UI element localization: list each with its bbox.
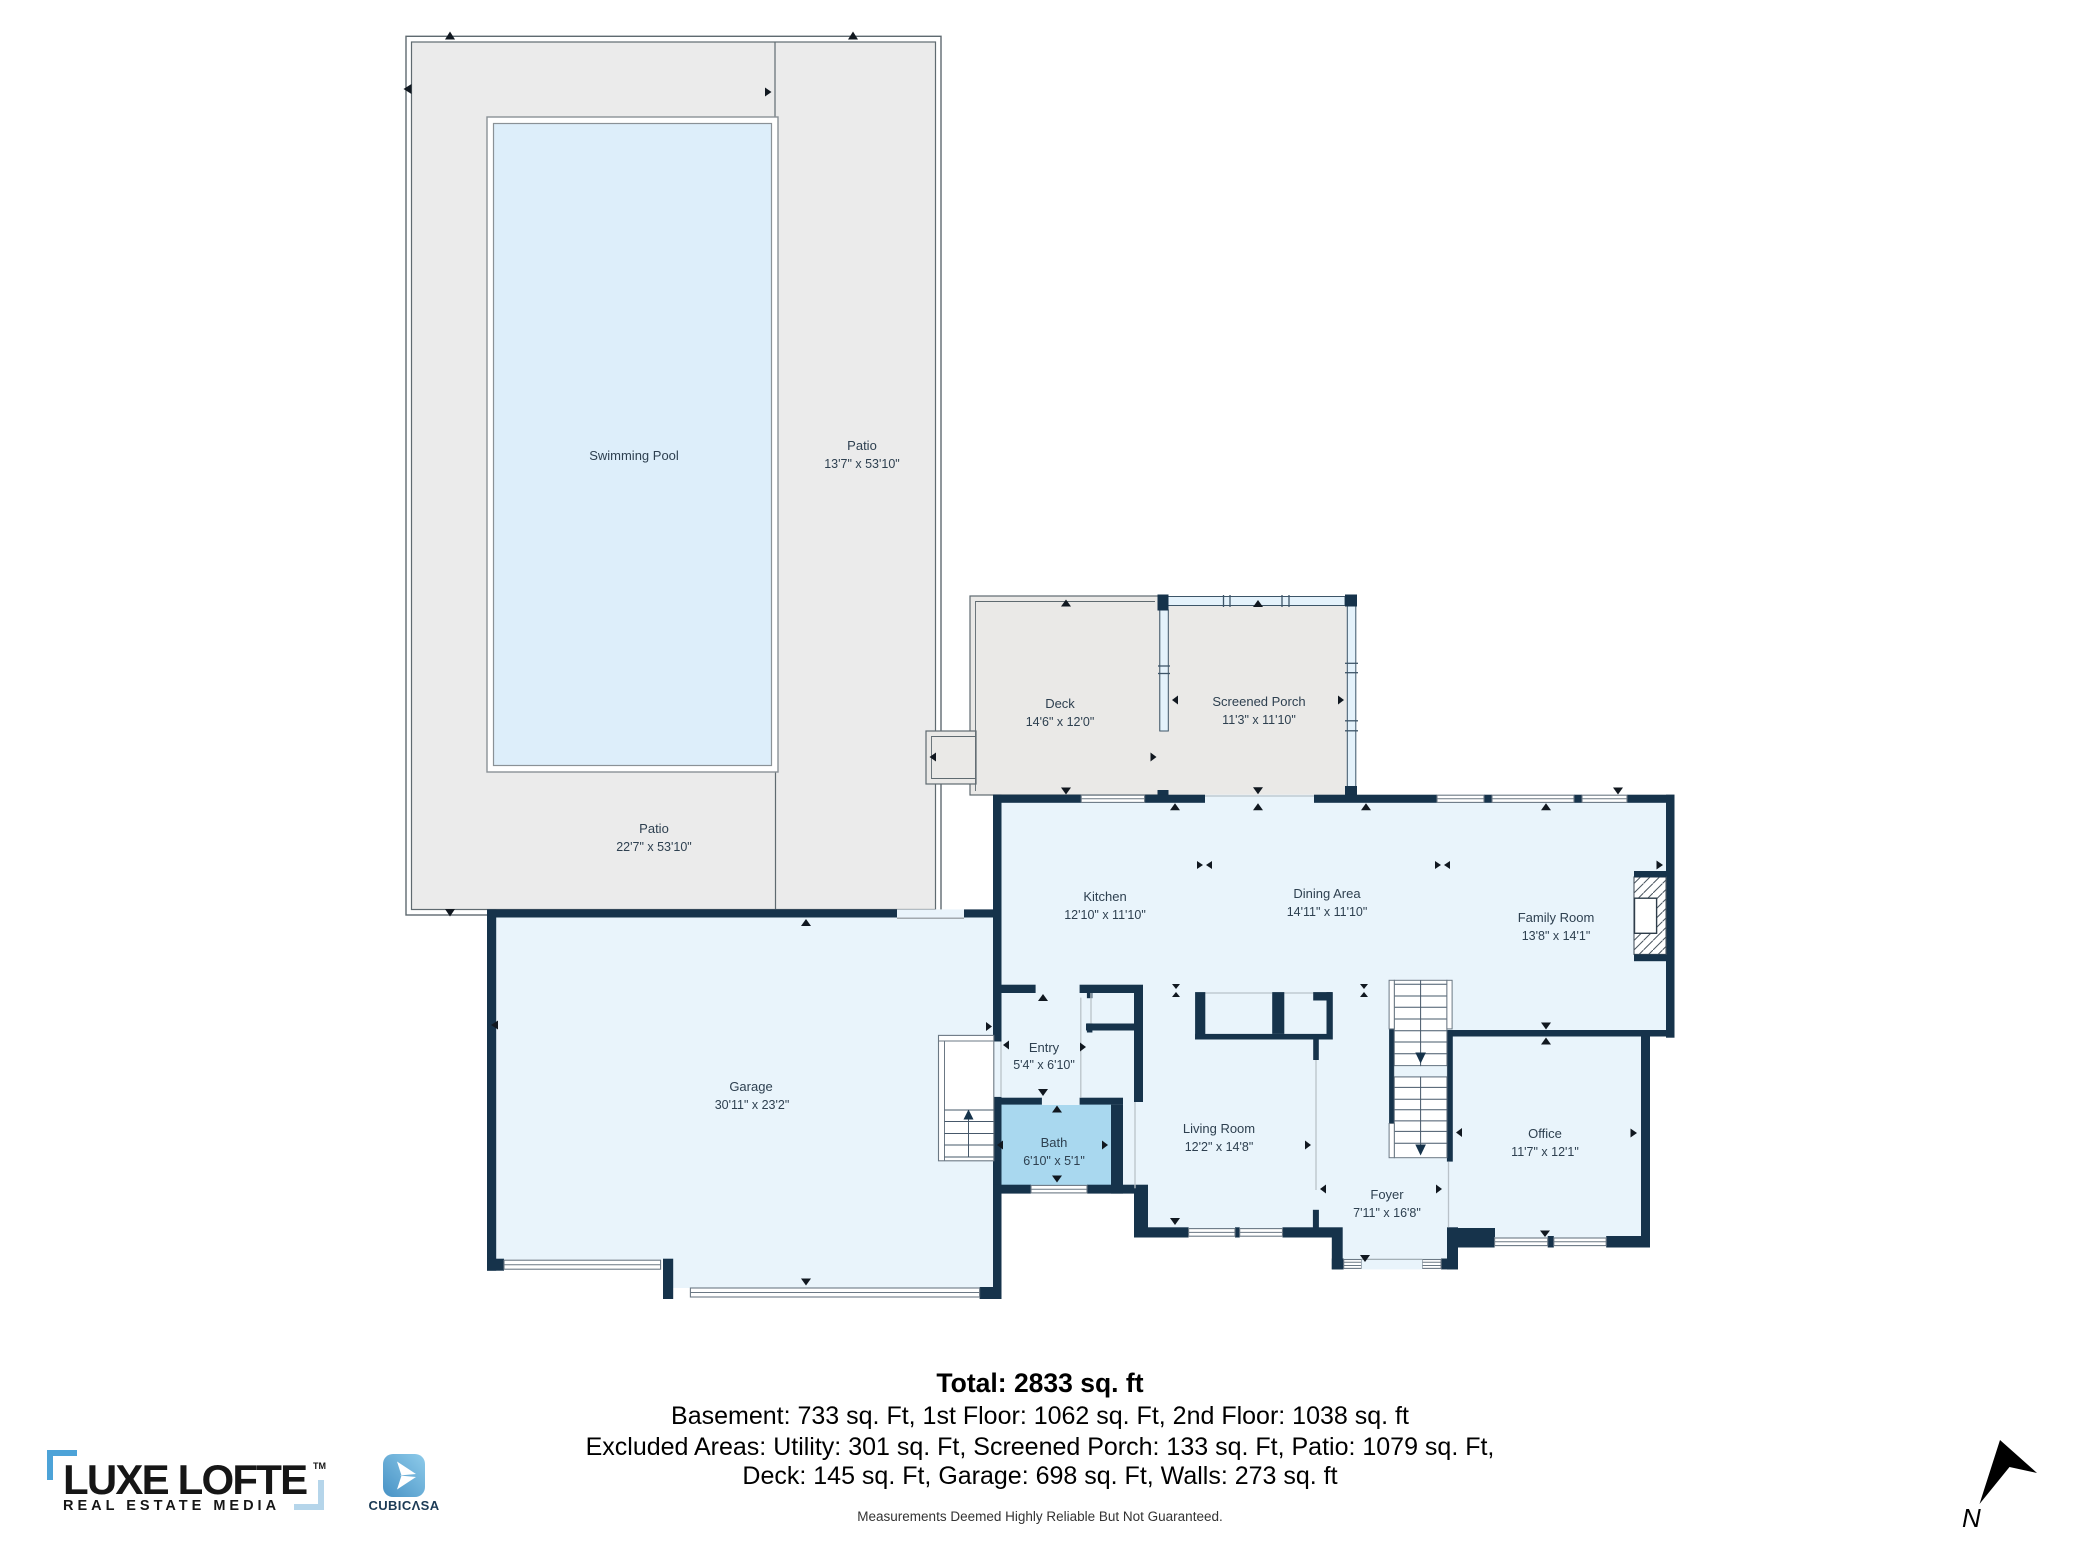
svg-text:CUBICΛSA: CUBICΛSA <box>368 1498 439 1513</box>
svg-text:12'2" x 14'8": 12'2" x 14'8" <box>1185 1140 1254 1154</box>
svg-text:Office: Office <box>1528 1126 1562 1141</box>
svg-text:22'7" x 53'10": 22'7" x 53'10" <box>616 840 692 854</box>
svg-text:11'3" x 11'10": 11'3" x 11'10" <box>1222 713 1296 727</box>
svg-text:6'10" x 5'1": 6'10" x 5'1" <box>1023 1154 1085 1168</box>
svg-text:Dining Area: Dining Area <box>1293 886 1361 901</box>
svg-text:Total: 2833 sq. ft: Total: 2833 sq. ft <box>936 1368 1143 1398</box>
svg-text:7'11" x 16'8": 7'11" x 16'8" <box>1353 1206 1421 1220</box>
svg-text:Foyer: Foyer <box>1370 1187 1404 1202</box>
svg-text:Deck: Deck <box>1045 696 1075 711</box>
svg-text:Swimming Pool: Swimming Pool <box>589 448 679 463</box>
svg-text:13'7" x 53'10": 13'7" x 53'10" <box>824 457 900 471</box>
svg-text:Living Room: Living Room <box>1183 1121 1255 1136</box>
svg-text:13'8" x 14'1": 13'8" x 14'1" <box>1522 929 1591 943</box>
svg-text:14'6" x 12'0": 14'6" x 12'0" <box>1026 715 1095 729</box>
svg-text:Basement: 733 sq. Ft, 1st Floo: Basement: 733 sq. Ft, 1st Floor: 1062 sq… <box>671 1402 1409 1430</box>
svg-text:LUXE LOFTE: LUXE LOFTE <box>63 1456 307 1503</box>
svg-text:TM: TM <box>313 1461 326 1471</box>
svg-text:Screened Porch: Screened Porch <box>1212 694 1305 709</box>
svg-text:12'10" x 11'10": 12'10" x 11'10" <box>1064 908 1146 922</box>
svg-text:Patio: Patio <box>639 821 669 836</box>
svg-text:Patio: Patio <box>847 438 877 453</box>
svg-text:Measurements Deemed Highly Rel: Measurements Deemed Highly Reliable But … <box>857 1509 1222 1524</box>
svg-text:5'4" x 6'10": 5'4" x 6'10" <box>1013 1058 1075 1072</box>
svg-text:Excluded Areas: Utility: 301 s: Excluded Areas: Utility: 301 sq. Ft, Scr… <box>586 1433 1495 1461</box>
svg-text:Garage: Garage <box>729 1079 772 1094</box>
svg-text:14'11" x 11'10": 14'11" x 11'10" <box>1287 905 1368 919</box>
svg-text:Kitchen: Kitchen <box>1083 889 1126 904</box>
svg-text:11'7" x 12'1": 11'7" x 12'1" <box>1511 1145 1579 1159</box>
svg-text:N: N <box>1962 1503 1981 1533</box>
svg-text:30'11" x 23'2": 30'11" x 23'2" <box>715 1098 790 1112</box>
svg-text:Family Room: Family Room <box>1518 910 1595 925</box>
svg-text:Bath: Bath <box>1041 1135 1068 1150</box>
svg-text:REAL ESTATE MEDIA: REAL ESTATE MEDIA <box>63 1498 280 1514</box>
svg-text:Deck: 145 sq. Ft, Garage: 698: Deck: 145 sq. Ft, Garage: 698 sq. Ft, Wa… <box>742 1462 1337 1490</box>
svg-text:Entry: Entry <box>1029 1040 1060 1055</box>
